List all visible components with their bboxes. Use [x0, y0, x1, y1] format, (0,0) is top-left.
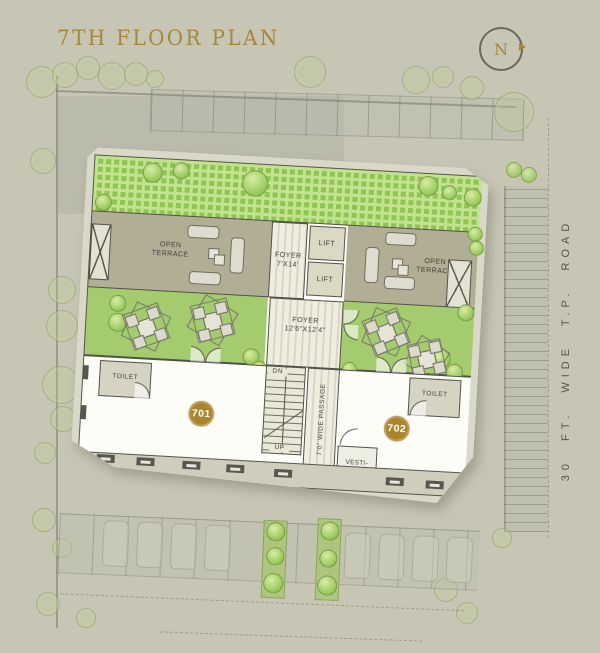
ghost-car-icon: [170, 523, 198, 570]
foyer-side-door: [343, 310, 361, 341]
tree-icon: [266, 547, 285, 566]
ghost-tree-icon: [294, 56, 326, 88]
planter-strip: [315, 518, 342, 601]
ghost-tree-icon: [76, 56, 100, 80]
ghost-tree-icon: [52, 62, 78, 88]
window-icon: [182, 461, 200, 470]
window-icon: [136, 457, 154, 466]
bottom-parking-area: [56, 507, 480, 621]
ghost-car-icon: [411, 535, 439, 582]
floor-plan-canvas: 7TH FLOOR PLAN N: [0, 0, 600, 653]
ghost-tree-icon: [34, 442, 56, 464]
tree-icon: [266, 522, 286, 542]
ghost-car-icon: [445, 536, 473, 583]
boundary-line: [548, 118, 549, 538]
door-arc-icon: [190, 346, 206, 362]
door-arc-icon: [391, 357, 407, 373]
ghost-car-icon: [136, 522, 164, 569]
tree-icon: [521, 167, 537, 183]
stairs-down-label: DN: [268, 367, 288, 376]
window-icon: [425, 480, 443, 489]
ghost-tree-icon: [124, 62, 148, 86]
ghost-tree-icon: [30, 148, 56, 174]
side-table-icon: [214, 254, 226, 266]
tree-icon: [319, 549, 338, 568]
ghost-tree-icon: [492, 528, 512, 548]
side-table-icon: [397, 264, 409, 276]
staircase: [261, 365, 306, 455]
ghost-tree-icon: [32, 508, 56, 532]
tree-icon: [320, 521, 340, 541]
ghost-tree-icon: [76, 608, 96, 628]
column-icon: [83, 365, 89, 379]
ghost-car-icon: [204, 524, 232, 571]
planter-strip: [261, 520, 288, 599]
chair-icon: [428, 340, 442, 354]
foyer-upper-label: FOYER 7'X14': [267, 251, 308, 271]
ghost-tree-icon: [48, 276, 76, 304]
column-icon: [81, 405, 87, 419]
tree-icon: [469, 240, 485, 256]
lounger-icon: [189, 271, 222, 286]
door-arc-icon: [343, 325, 359, 341]
ghost-car-icon: [102, 520, 130, 567]
unit-702-entry-door: [376, 356, 407, 374]
lounger-icon: [229, 237, 245, 274]
window-icon: [96, 454, 114, 463]
duct-shaft-icon: [89, 223, 112, 280]
ghost-car-icon: [377, 534, 405, 581]
lounger-icon: [364, 247, 380, 284]
tree-icon: [317, 575, 338, 596]
building-plan: OPEN TERRACE OPEN TERRACE: [69, 147, 489, 505]
duct-shaft-icon: [446, 259, 473, 308]
building-outline: OPEN TERRACE OPEN TERRACE: [69, 147, 489, 505]
ghost-tree-icon: [146, 70, 164, 88]
ghost-tree-icon: [46, 310, 78, 342]
ghost-tree-icon: [98, 62, 126, 90]
tree-icon: [263, 573, 284, 594]
ghost-tree-icon: [460, 76, 484, 100]
door-arc-icon: [376, 356, 392, 372]
ghost-tree-icon: [494, 92, 534, 132]
stairs-up-label: UP: [269, 444, 289, 453]
lift-lower: LIFT: [306, 261, 344, 297]
chair-icon: [407, 344, 421, 358]
window-icon: [386, 477, 404, 486]
lounger-icon: [385, 232, 417, 247]
north-compass-icon: N: [479, 27, 523, 71]
unit-701-entry-door: [190, 346, 221, 364]
lift-upper: LIFT: [308, 226, 346, 262]
window-icon: [226, 464, 244, 473]
lounger-icon: [384, 276, 416, 291]
chair-icon: [432, 361, 446, 375]
window-icon: [274, 469, 292, 478]
north-arrow-icon: [519, 43, 526, 51]
building-interior: OPEN TERRACE OPEN TERRACE: [77, 154, 482, 497]
ghost-car-icon: [343, 532, 371, 579]
door-arc-icon: [205, 347, 221, 363]
north-label: N: [494, 40, 508, 59]
lounger-icon: [187, 225, 220, 240]
ghost-tree-icon: [402, 66, 430, 94]
ghost-tree-icon: [432, 66, 454, 88]
boundary-line: [160, 631, 422, 641]
page-title: 7TH FLOOR PLAN: [57, 26, 280, 50]
road-side-paving: [504, 186, 548, 532]
door-arc-icon: [343, 310, 359, 326]
tree-icon: [506, 162, 522, 178]
road-label: 30 FT. WIDE T.P. ROAD: [555, 227, 577, 473]
